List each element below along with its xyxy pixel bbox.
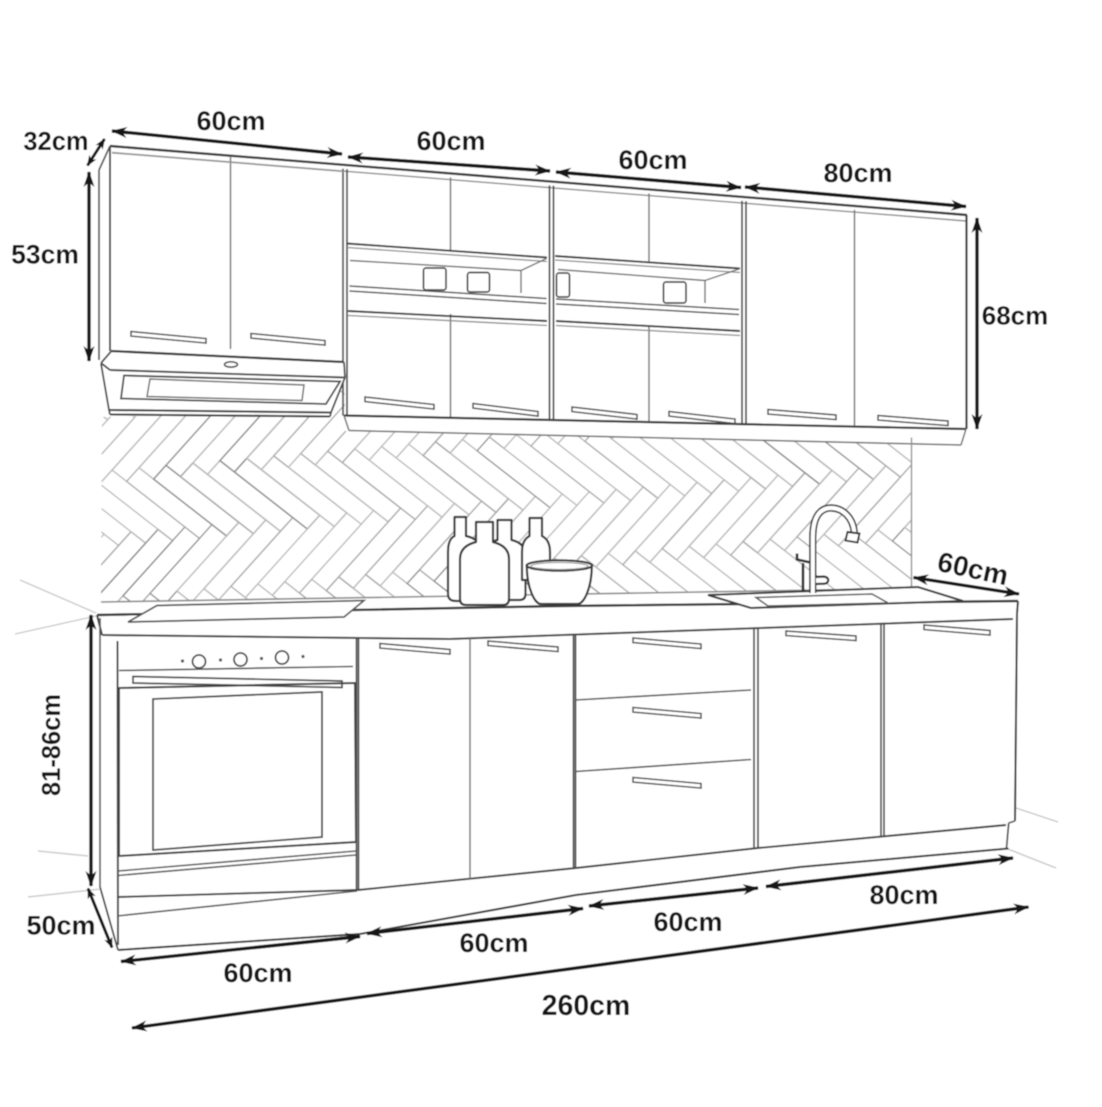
svg-text:32cm: 32cm (23, 128, 88, 156)
svg-text:60cm: 60cm (618, 145, 687, 175)
svg-text:80cm: 80cm (869, 880, 938, 910)
svg-text:50cm: 50cm (26, 911, 95, 941)
svg-text:81-86cm: 81-86cm (38, 694, 66, 796)
svg-text:60cm: 60cm (223, 958, 292, 988)
svg-text:60cm: 60cm (653, 907, 722, 937)
svg-text:60cm: 60cm (416, 126, 485, 156)
svg-text:60cm: 60cm (459, 928, 528, 958)
svg-text:53cm: 53cm (11, 240, 79, 270)
svg-text:260cm: 260cm (542, 990, 631, 1022)
svg-text:68cm: 68cm (982, 301, 1049, 331)
svg-text:80cm: 80cm (823, 158, 892, 188)
svg-text:60cm: 60cm (196, 106, 265, 136)
